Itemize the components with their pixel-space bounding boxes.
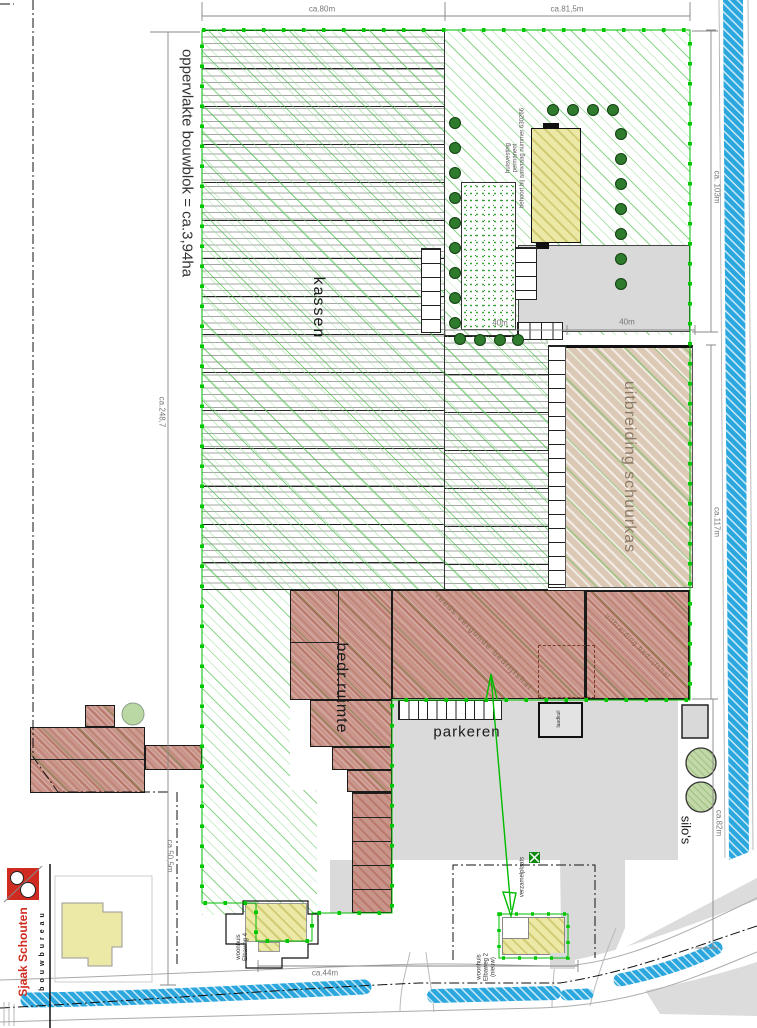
logo-firm-label: bouwbureau [39,909,47,991]
bush-icons [450,105,627,346]
cadastral-lines [0,0,757,1008]
site-plan: oppervlakte bouwblok = ca.3,94ha kassen … [0,0,757,1028]
tree-icon [122,703,144,725]
relocation-arrow [486,674,516,916]
bouwblok-boundary [202,30,690,941]
woonhuis2-line2: Elbaweg 2 [484,953,491,981]
woonhuis2-line1: woonhuis [477,953,484,981]
dim-right-upper: ca. 103m [712,171,721,204]
dim-right-lower: ca.82m [714,810,723,836]
bedrijfsruimte-label: bedr.ruimte [332,642,350,733]
verzamelplaats-icon [529,852,540,863]
woonhuis2-line3: (nieuw) [490,953,497,981]
woonhuis4-label: woonhuis Elbaweg 4 [236,933,250,961]
schuurkas-label: uitbreiding schuurkas [620,381,638,553]
area-label: oppervlakte bouwblok = ca.3,94ha [178,49,195,277]
dim-left-total: ca.248,7 [157,397,166,428]
dim-top-right: ca.81,5m [551,4,584,13]
woonhuis2-selection [499,914,568,958]
dim-right-mid: ca.117m [712,507,721,537]
dim-left-lower: ca.50,5m [165,840,174,873]
kassen-label: kassen [309,277,327,340]
silo-icon [686,748,716,778]
parkeren-label: parkeren [433,723,500,740]
laadkuil-label: laadkuil [557,711,563,728]
woonhuis2-label: woonhuis Elbaweg 2 (nieuw) [477,953,498,981]
huisvesting-line1: huisvesting [506,108,513,208]
dim-top-left: ca.80m [309,4,335,13]
dim-forty-b: 40m [619,317,635,326]
line-layer [0,0,757,1028]
logo-company-name: Sjaak Schouten [17,907,31,996]
dim-forty-a: 40m [492,318,508,327]
woonhuis4-line1: woonhuis [236,933,243,961]
dim-bottom-width: ca.44m [312,968,338,977]
verzamelplaats-label: verzamelplaats [520,857,527,897]
silo-icon [686,782,716,812]
huisvesting-label: huisvesting permanent behoort bij aanvra… [506,108,527,208]
huisvesting-line3: behoort bij aanvraag nummer 630266 [519,108,526,208]
huisvesting-line2: permanent [513,108,520,208]
silo-pad [682,705,708,738]
woonhuis4-line2: Elbaweg 4 [243,933,250,961]
silos-label: silo's [678,816,693,845]
